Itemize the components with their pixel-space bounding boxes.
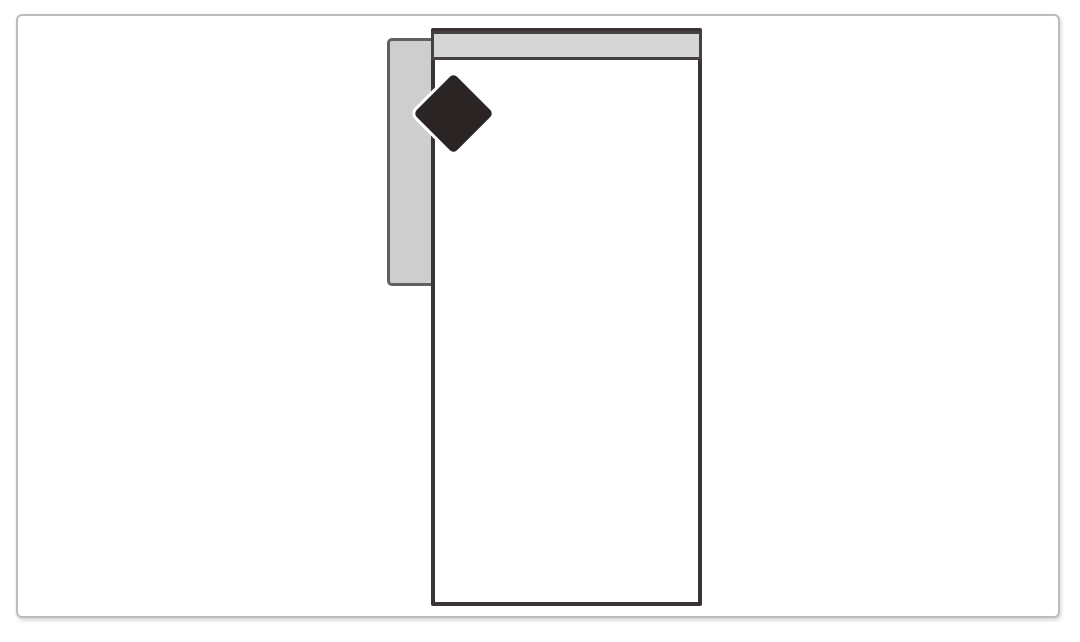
diagram-page <box>0 0 1080 642</box>
sofa-armrest-left <box>387 38 437 286</box>
image-frame <box>16 14 1060 618</box>
sofa-backrest-bar <box>431 31 702 60</box>
